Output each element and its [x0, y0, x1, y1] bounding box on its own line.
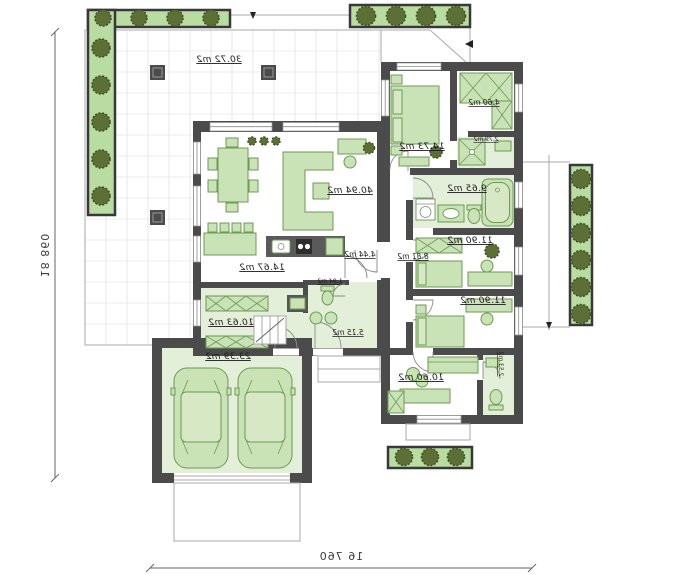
hall-closet-top [206, 296, 268, 311]
coffee-table [313, 183, 329, 199]
label-hallway: 4.44 m2 [344, 250, 375, 259]
label-garage: 23.39 m2 [205, 352, 251, 362]
living-room-furniture [208, 137, 375, 230]
dresser [399, 157, 429, 166]
dryer-icon [325, 312, 337, 324]
label-wc-2: 2.53 m2 [497, 351, 504, 376]
car [235, 368, 295, 468]
plant-icon [248, 137, 256, 145]
attic-stairs [254, 316, 286, 344]
plant-icon [272, 137, 280, 145]
plant-icon [485, 244, 499, 258]
plant-icon [364, 143, 375, 154]
label-office: 10.60 m2 [398, 373, 444, 383]
floor-plan-page: 30.72 m2 40.94 m2 14.67 m2 10.63 m2 5.15… [0, 0, 700, 575]
toilet-icon [467, 205, 481, 224]
label-bathroom: 9.65 m2 [447, 184, 487, 194]
nightstand [391, 75, 402, 84]
nightstand [416, 305, 426, 314]
label-entrance: 5.15 m2 [332, 328, 363, 337]
dining-table [218, 148, 248, 202]
label-master-bedroom: 14.73 m2 [399, 142, 445, 152]
label-living-room: 40.94 m2 [327, 186, 373, 196]
dimension-label-height: 18 860 [38, 233, 51, 278]
dimension-label-width: 16 760 [319, 550, 364, 563]
sink-icon [272, 240, 290, 253]
label-bedroom-1: 11.90 m2 [447, 236, 493, 246]
kitchen-island [204, 233, 256, 255]
label-bathroom-small: 2.79 m2 [473, 136, 498, 143]
plant-icon [260, 137, 268, 145]
label-bedroom-2: 11.90 m2 [460, 296, 506, 306]
desk-chair [481, 260, 493, 272]
floor-plan: 30.72 m2 40.94 m2 14.67 m2 10.63 m2 5.15… [0, 0, 700, 575]
car [171, 368, 231, 468]
marker-arrow-icon [465, 40, 473, 48]
small-sofa [428, 357, 478, 373]
label-wardrobe: 4.60 m2 [468, 98, 499, 107]
label-hall: 10.63 m2 [208, 318, 254, 328]
washing-machine-icon [416, 199, 435, 220]
desk-chair [344, 156, 356, 168]
office-furniture [388, 357, 478, 413]
bedroom2-furniture [416, 299, 512, 347]
desk [468, 272, 512, 286]
walkway [406, 424, 470, 440]
toilet-icon [321, 286, 334, 305]
desk [400, 389, 450, 403]
master-bedroom-furniture [391, 75, 442, 166]
label-kitchen: 14.67 m2 [239, 263, 285, 273]
driveway [174, 483, 300, 541]
desk [338, 139, 366, 154]
washer-icon [310, 312, 322, 324]
marker-arrow-icon [546, 322, 552, 329]
toilet-icon [489, 390, 503, 411]
desk-chair [481, 313, 493, 325]
fridge [326, 238, 343, 255]
label-wc: 1.94 m2 [317, 278, 342, 285]
label-corridor: 8.81 m2 [397, 252, 428, 261]
label-terrace: 30.72 m2 [196, 55, 242, 65]
